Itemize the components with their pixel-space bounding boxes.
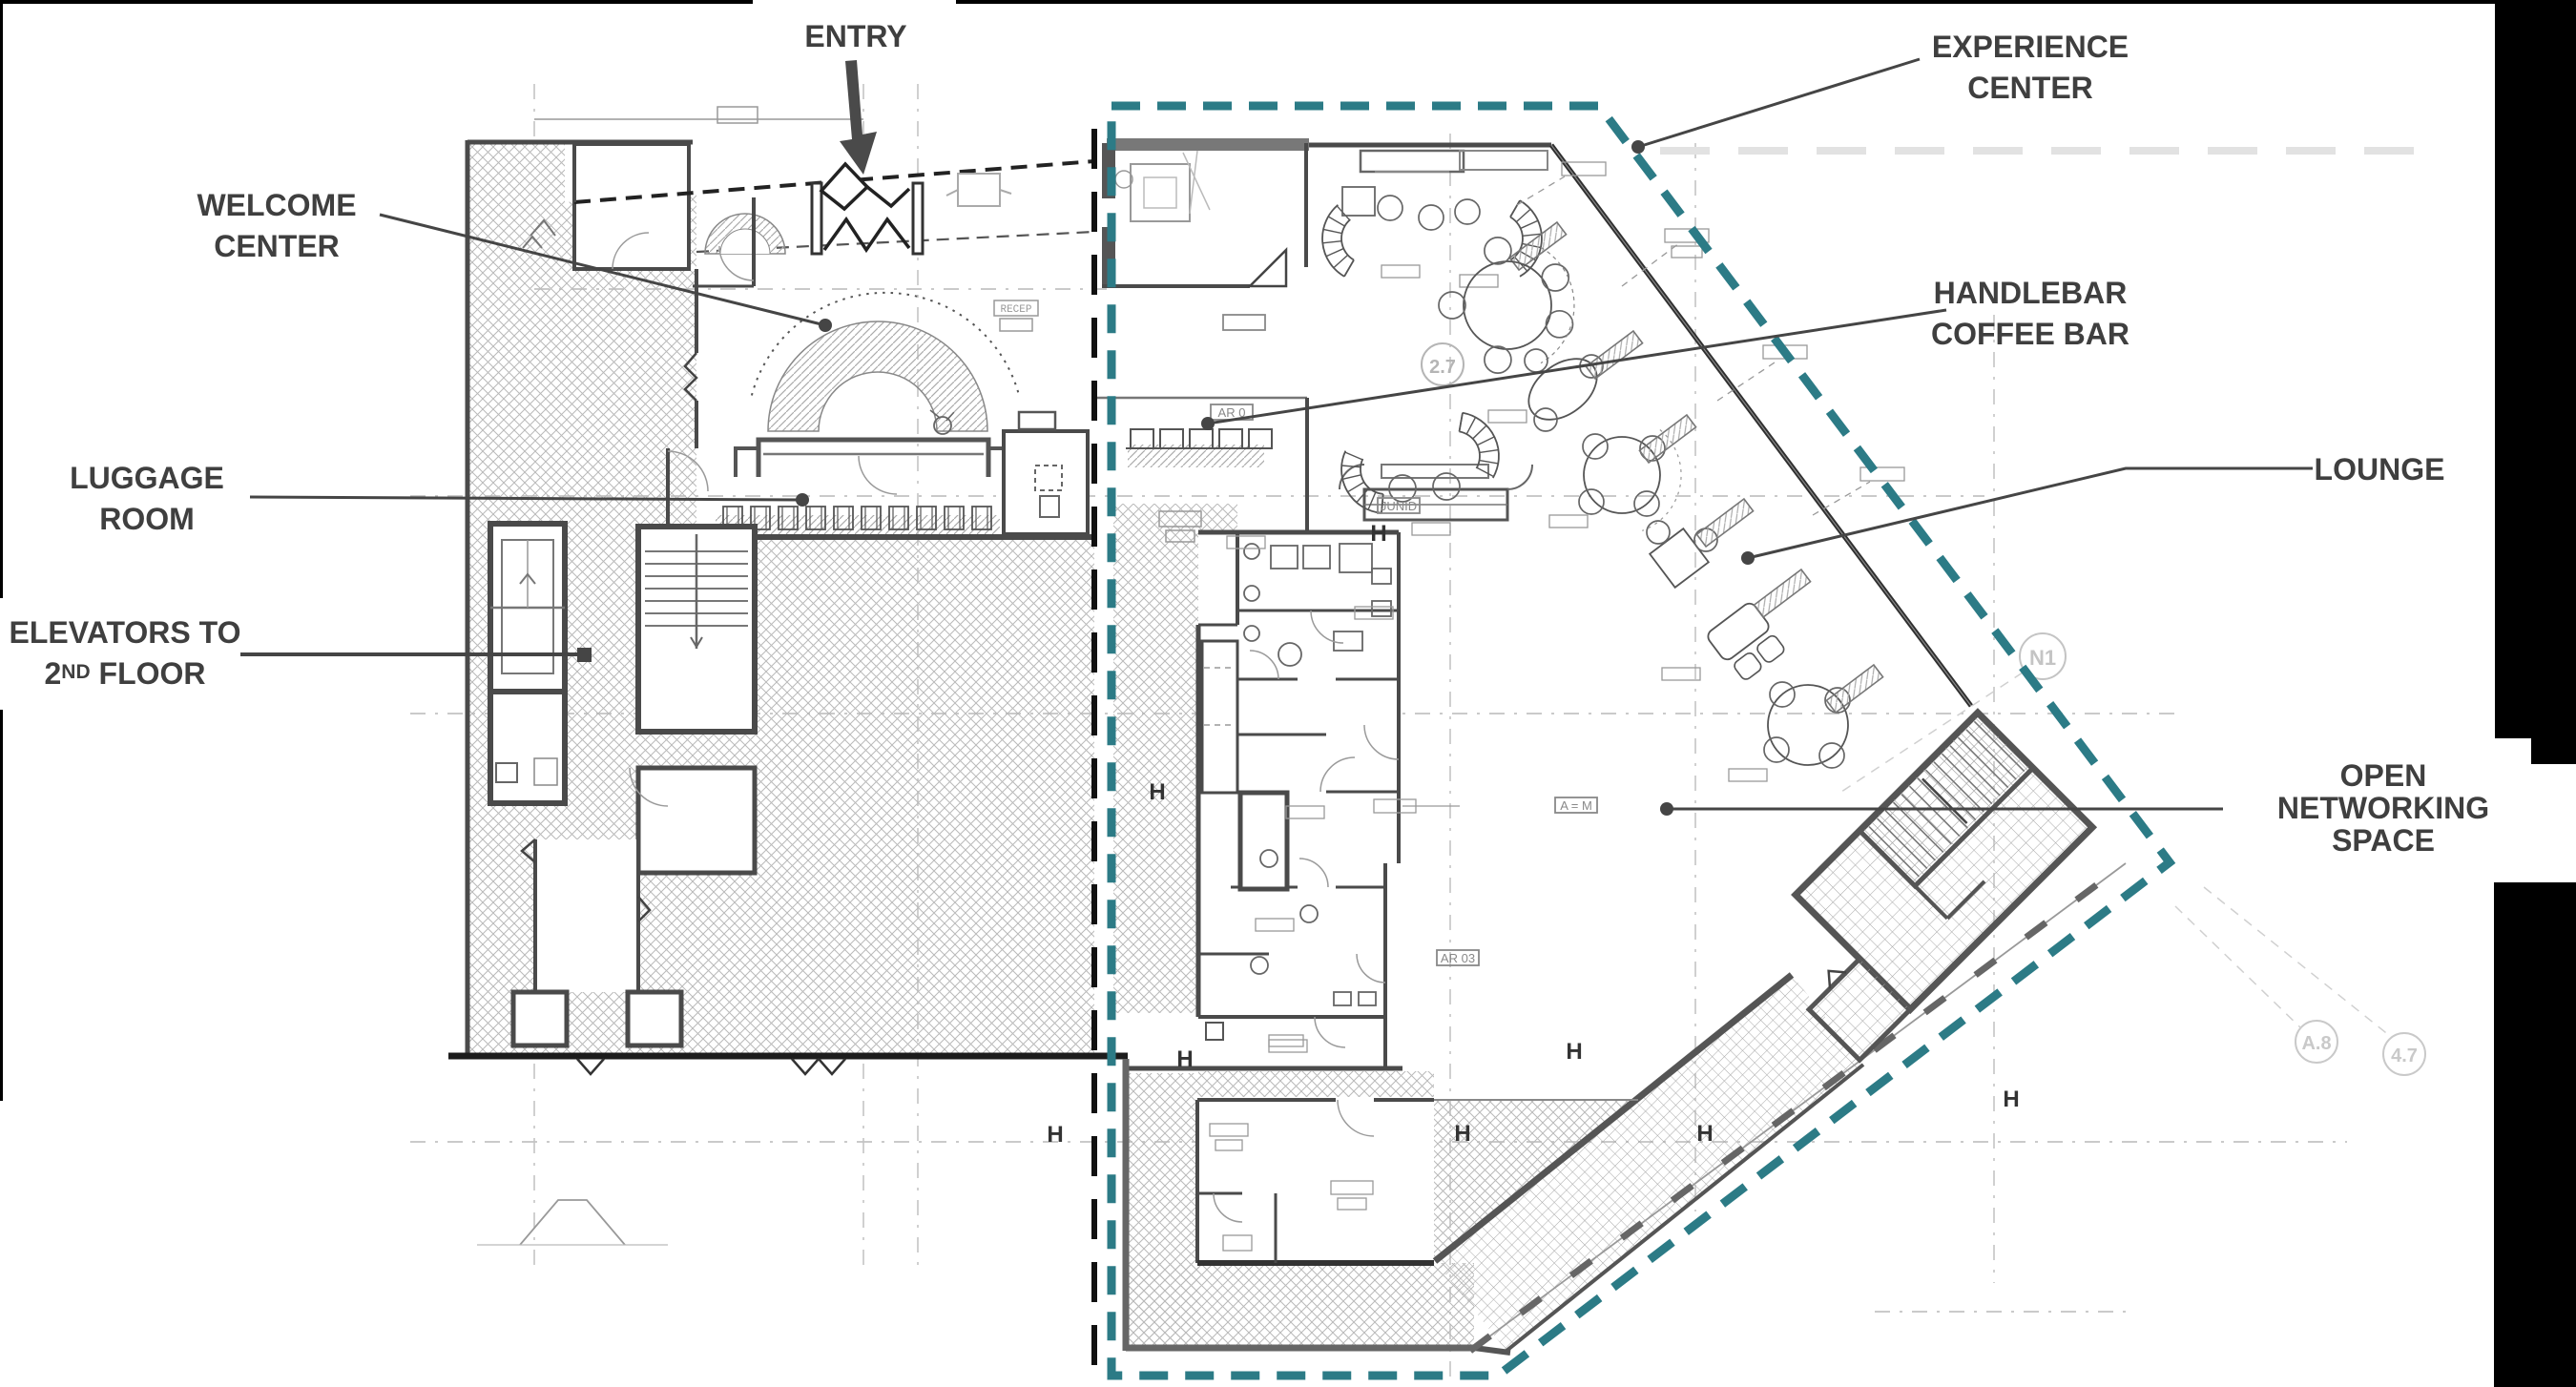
svg-text:H: H bbox=[1176, 1046, 1193, 1072]
svg-text:A = M: A = M bbox=[1560, 798, 1592, 813]
svg-text:AR 03: AR 03 bbox=[1441, 951, 1475, 965]
svg-text:SPACE: SPACE bbox=[2332, 823, 2435, 858]
svg-text:WELCOME: WELCOME bbox=[197, 188, 356, 222]
svg-text:H: H bbox=[2003, 1087, 2019, 1112]
svg-text:LOUNGE: LOUNGE bbox=[2315, 452, 2445, 486]
svg-text:H: H bbox=[1370, 521, 1386, 547]
svg-text:A.8: A.8 bbox=[2301, 1033, 2331, 1054]
svg-text:LUGGAGE: LUGGAGE bbox=[70, 461, 224, 495]
svg-text:CENTER: CENTER bbox=[1967, 71, 2093, 105]
svg-text:HANDLEBAR: HANDLEBAR bbox=[1934, 276, 2128, 310]
svg-text:RECEP: RECEP bbox=[1000, 304, 1031, 316]
svg-text:H: H bbox=[1696, 1121, 1713, 1147]
svg-text:JUNID: JUNID bbox=[1381, 499, 1417, 513]
svg-text:ENTRY: ENTRY bbox=[804, 19, 906, 53]
svg-text:ELEVATORS TO: ELEVATORS TO bbox=[10, 615, 241, 650]
svg-text:NETWORKING: NETWORKING bbox=[2277, 791, 2489, 825]
svg-text:H: H bbox=[1454, 1121, 1470, 1147]
svg-text:CENTER: CENTER bbox=[214, 229, 340, 263]
svg-text:4.7: 4.7 bbox=[2391, 1045, 2418, 1066]
svg-text:ROOM: ROOM bbox=[99, 502, 195, 536]
svg-text:COFFEE BAR: COFFEE BAR bbox=[1931, 317, 2129, 351]
svg-text:N1: N1 bbox=[2029, 646, 2056, 670]
svg-text:H: H bbox=[1149, 779, 1165, 805]
svg-text:H: H bbox=[1047, 1122, 1063, 1148]
svg-text:EXPERIENCE: EXPERIENCE bbox=[1932, 30, 2129, 64]
svg-text:2.7: 2.7 bbox=[1429, 357, 1456, 378]
svg-text:OPEN: OPEN bbox=[2340, 758, 2427, 793]
svg-text:H: H bbox=[1566, 1039, 1582, 1065]
